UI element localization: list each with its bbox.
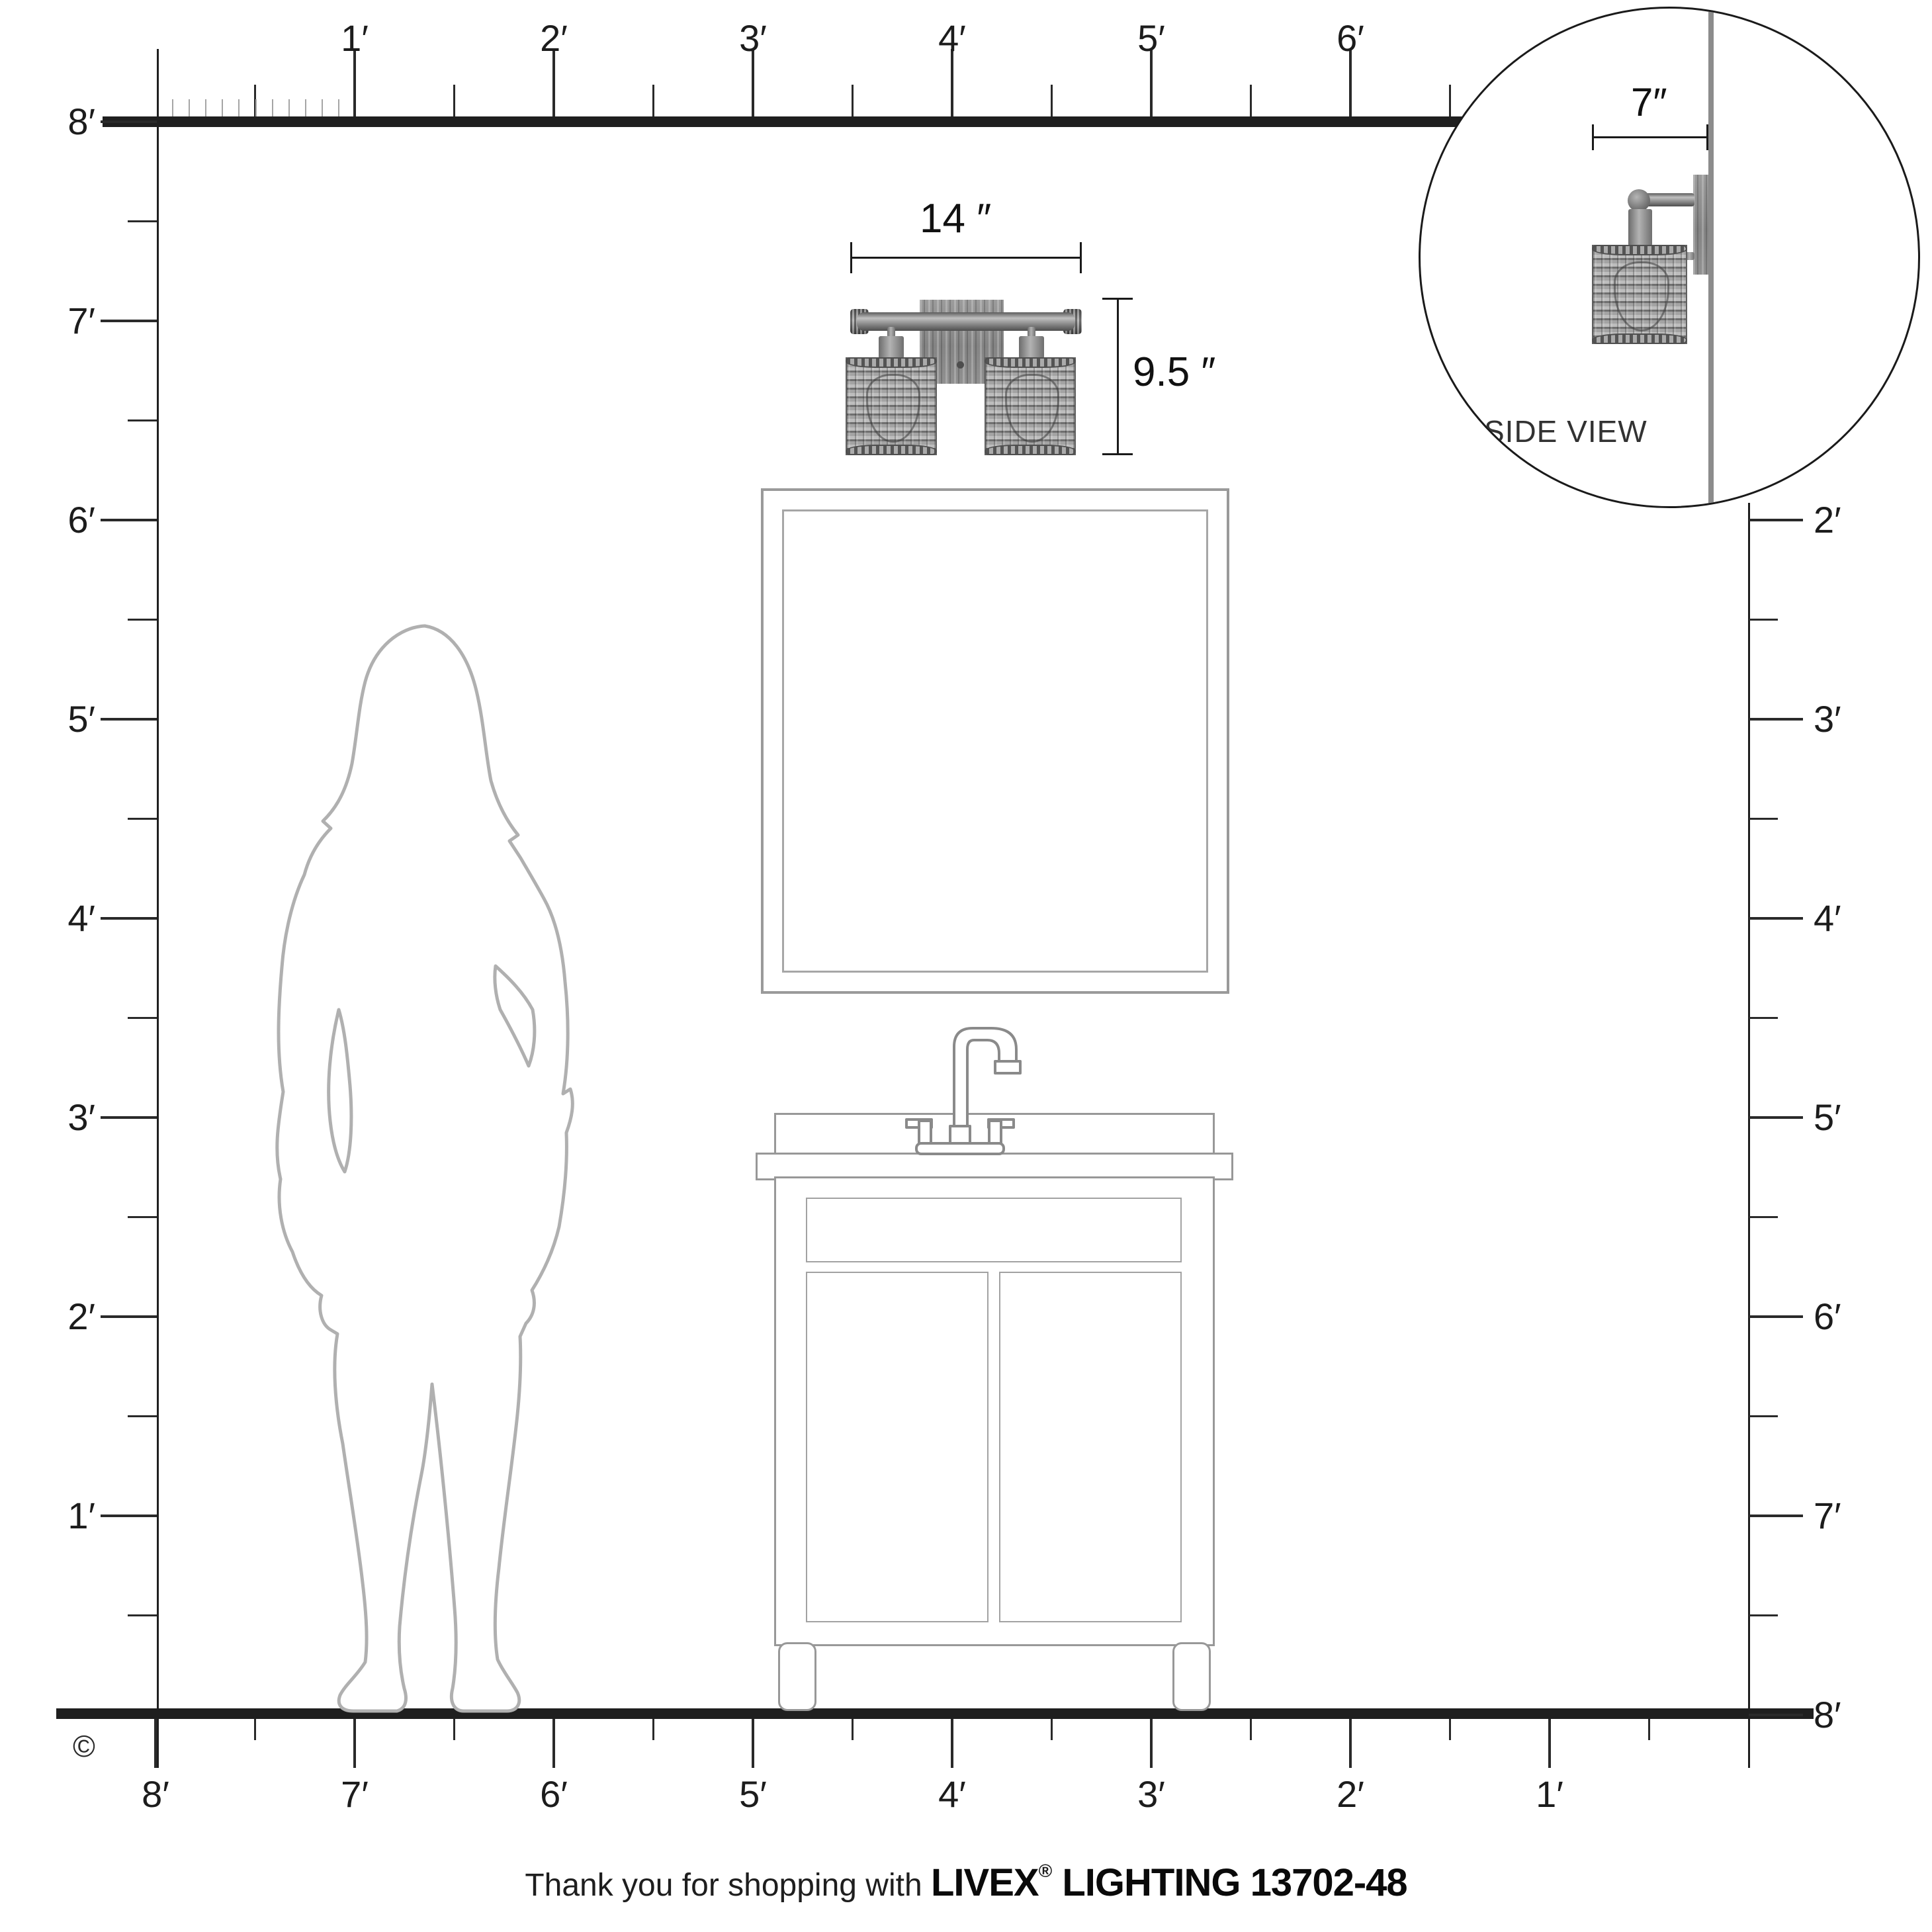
bottom-ruler-half-tick bbox=[1051, 1719, 1053, 1740]
right-ruler-label: 7′ bbox=[1814, 1496, 1886, 1536]
top-ruler-half-tick bbox=[1250, 85, 1252, 116]
right-ruler-half-tick bbox=[1749, 1614, 1778, 1616]
bottom-ruler-tick bbox=[154, 1719, 157, 1768]
footer-brand: LIVEX bbox=[931, 1861, 1039, 1904]
right-ruler-label: 5′ bbox=[1814, 1098, 1886, 1137]
fixture-socket-left bbox=[879, 336, 904, 359]
mirror-inner-frame bbox=[782, 509, 1208, 973]
sideview-wallplate bbox=[1693, 175, 1708, 275]
bottom-ruler-tick bbox=[353, 1719, 356, 1768]
shade-rim bbox=[846, 445, 937, 455]
bulb-outline bbox=[1614, 261, 1669, 331]
mirror bbox=[761, 488, 1229, 994]
top-ruler-tick bbox=[752, 49, 754, 116]
bottom-ruler-label: 8′ bbox=[116, 1775, 195, 1814]
left-ruler-half-tick bbox=[128, 818, 157, 820]
left-ruler-half-tick bbox=[128, 220, 157, 222]
left-ruler-label: 5′ bbox=[32, 699, 95, 739]
faucet bbox=[893, 1020, 1039, 1156]
left-ruler-label: 7′ bbox=[32, 301, 95, 341]
faucet-escutcheon bbox=[916, 1143, 1004, 1154]
right-ruler-label: 4′ bbox=[1814, 899, 1886, 938]
bottom-ruler-half-tick bbox=[1250, 1719, 1252, 1740]
right-ruler-half-tick bbox=[1749, 1415, 1778, 1417]
right-ruler-tick bbox=[1749, 1315, 1803, 1318]
left-ruler-label: 3′ bbox=[32, 1098, 95, 1137]
side-view-inset: 7″ SIDE VIEW bbox=[1419, 7, 1920, 508]
shade-rim bbox=[985, 445, 1076, 455]
fixture-shade-right bbox=[985, 357, 1076, 455]
bottom-ruler-half-tick bbox=[254, 1719, 256, 1740]
bottom-ruler-tick bbox=[951, 1719, 953, 1768]
side-view-label: SIDE VIEW bbox=[1484, 414, 1647, 449]
left-ruler-tick bbox=[101, 718, 157, 721]
top-ruler-half-tick bbox=[1051, 85, 1053, 116]
fixture-shade-left bbox=[846, 357, 937, 455]
vanity-foot-right bbox=[1172, 1642, 1211, 1711]
dimension-diagram: 1′2′3′4′5′6′8′7′6′5′4′3′2′1′2′3′4′5′6′7′… bbox=[0, 0, 1932, 1932]
fixture-socket-right bbox=[1019, 336, 1044, 359]
left-ruler-label: 2′ bbox=[32, 1297, 95, 1337]
footer: Thank you for shopping with LIVEX® LIGHT… bbox=[0, 1861, 1932, 1905]
right-ruler-tick bbox=[1749, 1714, 1803, 1716]
bottom-ruler-label: 4′ bbox=[912, 1775, 992, 1814]
left-ruler-half-tick bbox=[128, 619, 157, 621]
bottom-ruler-half-tick bbox=[852, 1719, 854, 1740]
left-ruler-label: 1′ bbox=[32, 1496, 95, 1536]
sideview-shade bbox=[1592, 245, 1687, 344]
sideview-ball-joint bbox=[1628, 189, 1650, 212]
left-ruler-line bbox=[157, 49, 159, 1768]
bottom-ruler-label: 1′ bbox=[1510, 1775, 1589, 1814]
registered-mark: ® bbox=[1039, 1861, 1053, 1881]
right-ruler-half-tick bbox=[1749, 818, 1778, 820]
top-ruler-inch-tick bbox=[238, 99, 240, 116]
top-ruler-tick bbox=[1349, 49, 1352, 116]
shade-rim bbox=[1592, 245, 1687, 255]
bottom-ruler-half-tick bbox=[453, 1719, 455, 1740]
top-ruler-tick bbox=[1150, 49, 1153, 116]
top-ruler-half-tick bbox=[652, 85, 654, 116]
faucet-handle-left-stem bbox=[919, 1121, 931, 1145]
top-ruler-tick bbox=[353, 49, 356, 116]
depth-dim-cap-right bbox=[1706, 124, 1708, 150]
bottom-ruler-half-tick bbox=[652, 1719, 654, 1740]
faucet-gooseneck bbox=[954, 1028, 1016, 1131]
top-ruler-half-tick bbox=[453, 85, 455, 116]
bulb-outline bbox=[1005, 374, 1059, 443]
faucet-socket bbox=[950, 1126, 970, 1145]
left-ruler-tick bbox=[101, 917, 157, 920]
top-ruler-tick bbox=[552, 49, 555, 116]
left-ruler-label: 8′ bbox=[32, 102, 95, 142]
vanity-door-right bbox=[999, 1272, 1182, 1622]
right-ruler-tick bbox=[1749, 718, 1803, 721]
top-ruler-half-tick bbox=[852, 85, 854, 116]
ceiling-line bbox=[103, 116, 1588, 127]
left-ruler-tick bbox=[101, 1315, 157, 1318]
height-dim-cap-top bbox=[1102, 298, 1133, 300]
right-ruler-tick bbox=[1749, 1515, 1803, 1517]
bottom-ruler-label: 6′ bbox=[514, 1775, 593, 1814]
depth-dim-label: 7″ bbox=[1631, 83, 1667, 122]
top-ruler-label: 2′ bbox=[514, 19, 593, 58]
bottom-ruler-label: 2′ bbox=[1311, 1775, 1390, 1814]
left-ruler-half-tick bbox=[128, 1017, 157, 1019]
bottom-ruler-tick bbox=[1150, 1719, 1153, 1768]
wall-section-line bbox=[1708, 9, 1714, 506]
right-ruler-tick bbox=[1749, 917, 1803, 920]
sideview-socket bbox=[1628, 209, 1652, 246]
right-ruler-label: 3′ bbox=[1814, 699, 1886, 739]
vanity-drawer-panel bbox=[806, 1198, 1182, 1262]
top-ruler-half-tick bbox=[1449, 85, 1451, 116]
footer-model: LIGHTING 13702-48 bbox=[1052, 1861, 1407, 1904]
bottom-ruler-label: 3′ bbox=[1112, 1775, 1191, 1814]
top-ruler-inch-tick bbox=[305, 99, 306, 116]
bottom-ruler-tick bbox=[1349, 1719, 1352, 1768]
top-ruler-inch-tick bbox=[205, 99, 206, 116]
width-dim-label: 14 ″ bbox=[920, 198, 991, 240]
left-ruler-half-tick bbox=[128, 1216, 157, 1218]
top-ruler-inch-tick bbox=[255, 99, 257, 116]
vanity-light-fixture bbox=[840, 298, 1092, 457]
bottom-ruler-tick bbox=[552, 1719, 555, 1768]
left-ruler-tick bbox=[101, 120, 157, 123]
width-dim-line bbox=[850, 257, 1082, 259]
left-ruler-tick bbox=[101, 320, 157, 322]
left-ruler-half-tick bbox=[128, 419, 157, 421]
top-ruler-label: 5′ bbox=[1112, 19, 1191, 58]
top-ruler-inch-tick bbox=[338, 99, 339, 116]
top-ruler-inch-tick bbox=[288, 99, 290, 116]
fixture-screw bbox=[957, 361, 964, 369]
shade-rim bbox=[846, 357, 937, 368]
vanity-door-left bbox=[806, 1272, 988, 1622]
left-ruler-half-tick bbox=[128, 1614, 157, 1616]
top-ruler-label: 1′ bbox=[315, 19, 394, 58]
shade-rim bbox=[1592, 333, 1687, 344]
top-ruler-inch-tick bbox=[222, 99, 223, 116]
right-ruler-label: 8′ bbox=[1814, 1695, 1886, 1735]
bottom-ruler-label: 5′ bbox=[713, 1775, 793, 1814]
top-ruler-label: 4′ bbox=[912, 19, 992, 58]
right-ruler-line bbox=[1748, 503, 1750, 1768]
left-ruler-label: 6′ bbox=[32, 500, 95, 540]
right-ruler-label: 2′ bbox=[1814, 500, 1886, 540]
footer-text: Thank you for shopping with bbox=[525, 1868, 931, 1903]
depth-dim-line bbox=[1592, 136, 1708, 138]
top-ruler-tick bbox=[951, 49, 953, 116]
woman-silhouette bbox=[258, 622, 592, 1714]
width-dim-cap-left bbox=[850, 242, 852, 273]
bottom-ruler-tick bbox=[752, 1719, 754, 1768]
top-ruler-label: 3′ bbox=[713, 19, 793, 58]
height-dim-line bbox=[1117, 298, 1119, 455]
left-ruler-tick bbox=[101, 1515, 157, 1517]
right-ruler-half-tick bbox=[1749, 1216, 1778, 1218]
right-ruler-tick bbox=[1749, 1116, 1803, 1119]
bulb-outline bbox=[866, 374, 920, 443]
bottom-ruler-half-tick bbox=[1449, 1719, 1451, 1740]
vanity-foot-left bbox=[778, 1642, 816, 1711]
left-ruler-tick bbox=[101, 1116, 157, 1119]
bottom-ruler-half-tick bbox=[1648, 1719, 1650, 1740]
top-ruler-inch-tick bbox=[189, 99, 190, 116]
top-ruler-inch-tick bbox=[322, 99, 323, 116]
left-ruler-label: 4′ bbox=[32, 899, 95, 938]
depth-dim-cap-left bbox=[1592, 124, 1594, 150]
faucet-spout-tip bbox=[995, 1061, 1020, 1073]
left-ruler-half-tick bbox=[128, 1415, 157, 1417]
top-ruler-label: 6′ bbox=[1311, 19, 1390, 58]
right-ruler-tick bbox=[1749, 519, 1803, 521]
width-dim-cap-right bbox=[1080, 242, 1082, 273]
right-ruler-label: 6′ bbox=[1814, 1297, 1886, 1337]
height-dim-cap-bottom bbox=[1102, 453, 1133, 455]
copyright-symbol: © bbox=[73, 1728, 95, 1764]
right-ruler-half-tick bbox=[1749, 1017, 1778, 1019]
top-ruler-inch-tick bbox=[272, 99, 273, 116]
faucet-handle-right-stem bbox=[989, 1121, 1001, 1145]
right-ruler-half-tick bbox=[1749, 619, 1778, 621]
bottom-ruler-label: 7′ bbox=[315, 1775, 394, 1814]
left-ruler-tick bbox=[101, 519, 157, 521]
height-dim-label: 9.5 ″ bbox=[1133, 352, 1215, 393]
top-ruler-inch-tick bbox=[172, 99, 173, 116]
bottom-ruler-tick bbox=[1548, 1719, 1551, 1768]
shade-rim bbox=[985, 357, 1076, 368]
